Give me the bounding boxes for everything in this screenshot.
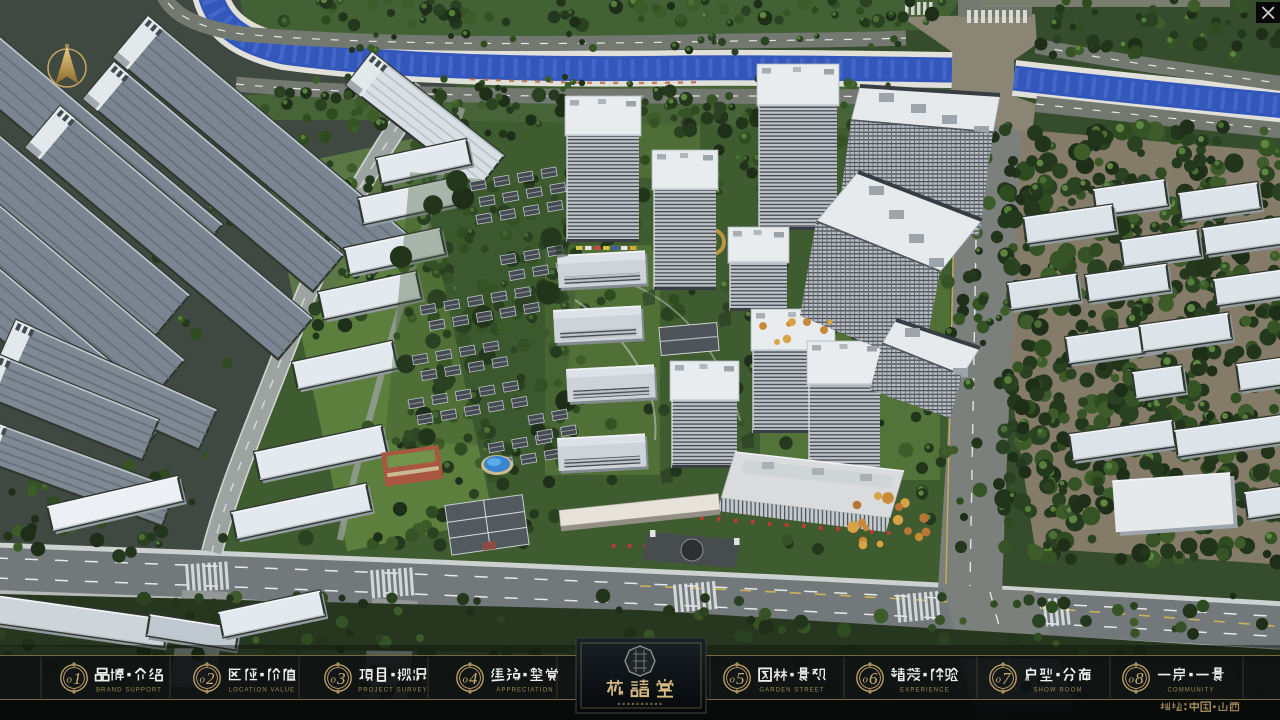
svg-text:SHOW ROOM: SHOW ROOM xyxy=(1034,688,1083,694)
svg-text:o: o xyxy=(996,674,1002,686)
svg-text:PROJECT SURVEY: PROJECT SURVEY xyxy=(358,688,428,694)
svg-text:o: o xyxy=(463,674,469,686)
svg-text:6: 6 xyxy=(869,669,878,688)
svg-text:o: o xyxy=(200,674,206,686)
svg-text:o: o xyxy=(863,674,869,686)
svg-text:GARDEN STREET: GARDEN STREET xyxy=(759,688,824,694)
svg-text:LOCATION VALUE: LOCATION VALUE xyxy=(229,688,296,694)
svg-text:BRAND SUPPORT: BRAND SUPPORT xyxy=(96,688,162,694)
svg-text:o: o xyxy=(1129,674,1135,686)
svg-text:o: o xyxy=(331,674,337,686)
svg-text:1: 1 xyxy=(73,669,82,688)
svg-text:8: 8 xyxy=(1135,669,1144,688)
svg-text:EXPERIENCE: EXPERIENCE xyxy=(900,688,950,694)
svg-text:2: 2 xyxy=(206,669,215,688)
svg-text:3: 3 xyxy=(336,669,346,688)
svg-text:o: o xyxy=(730,674,736,686)
svg-text:COMMUNITY: COMMUNITY xyxy=(1168,688,1215,694)
svg-text:5: 5 xyxy=(736,669,745,688)
svg-text:APPRECIATION: APPRECIATION xyxy=(496,688,553,694)
svg-text:o: o xyxy=(67,674,73,686)
svg-text:4: 4 xyxy=(469,669,478,688)
